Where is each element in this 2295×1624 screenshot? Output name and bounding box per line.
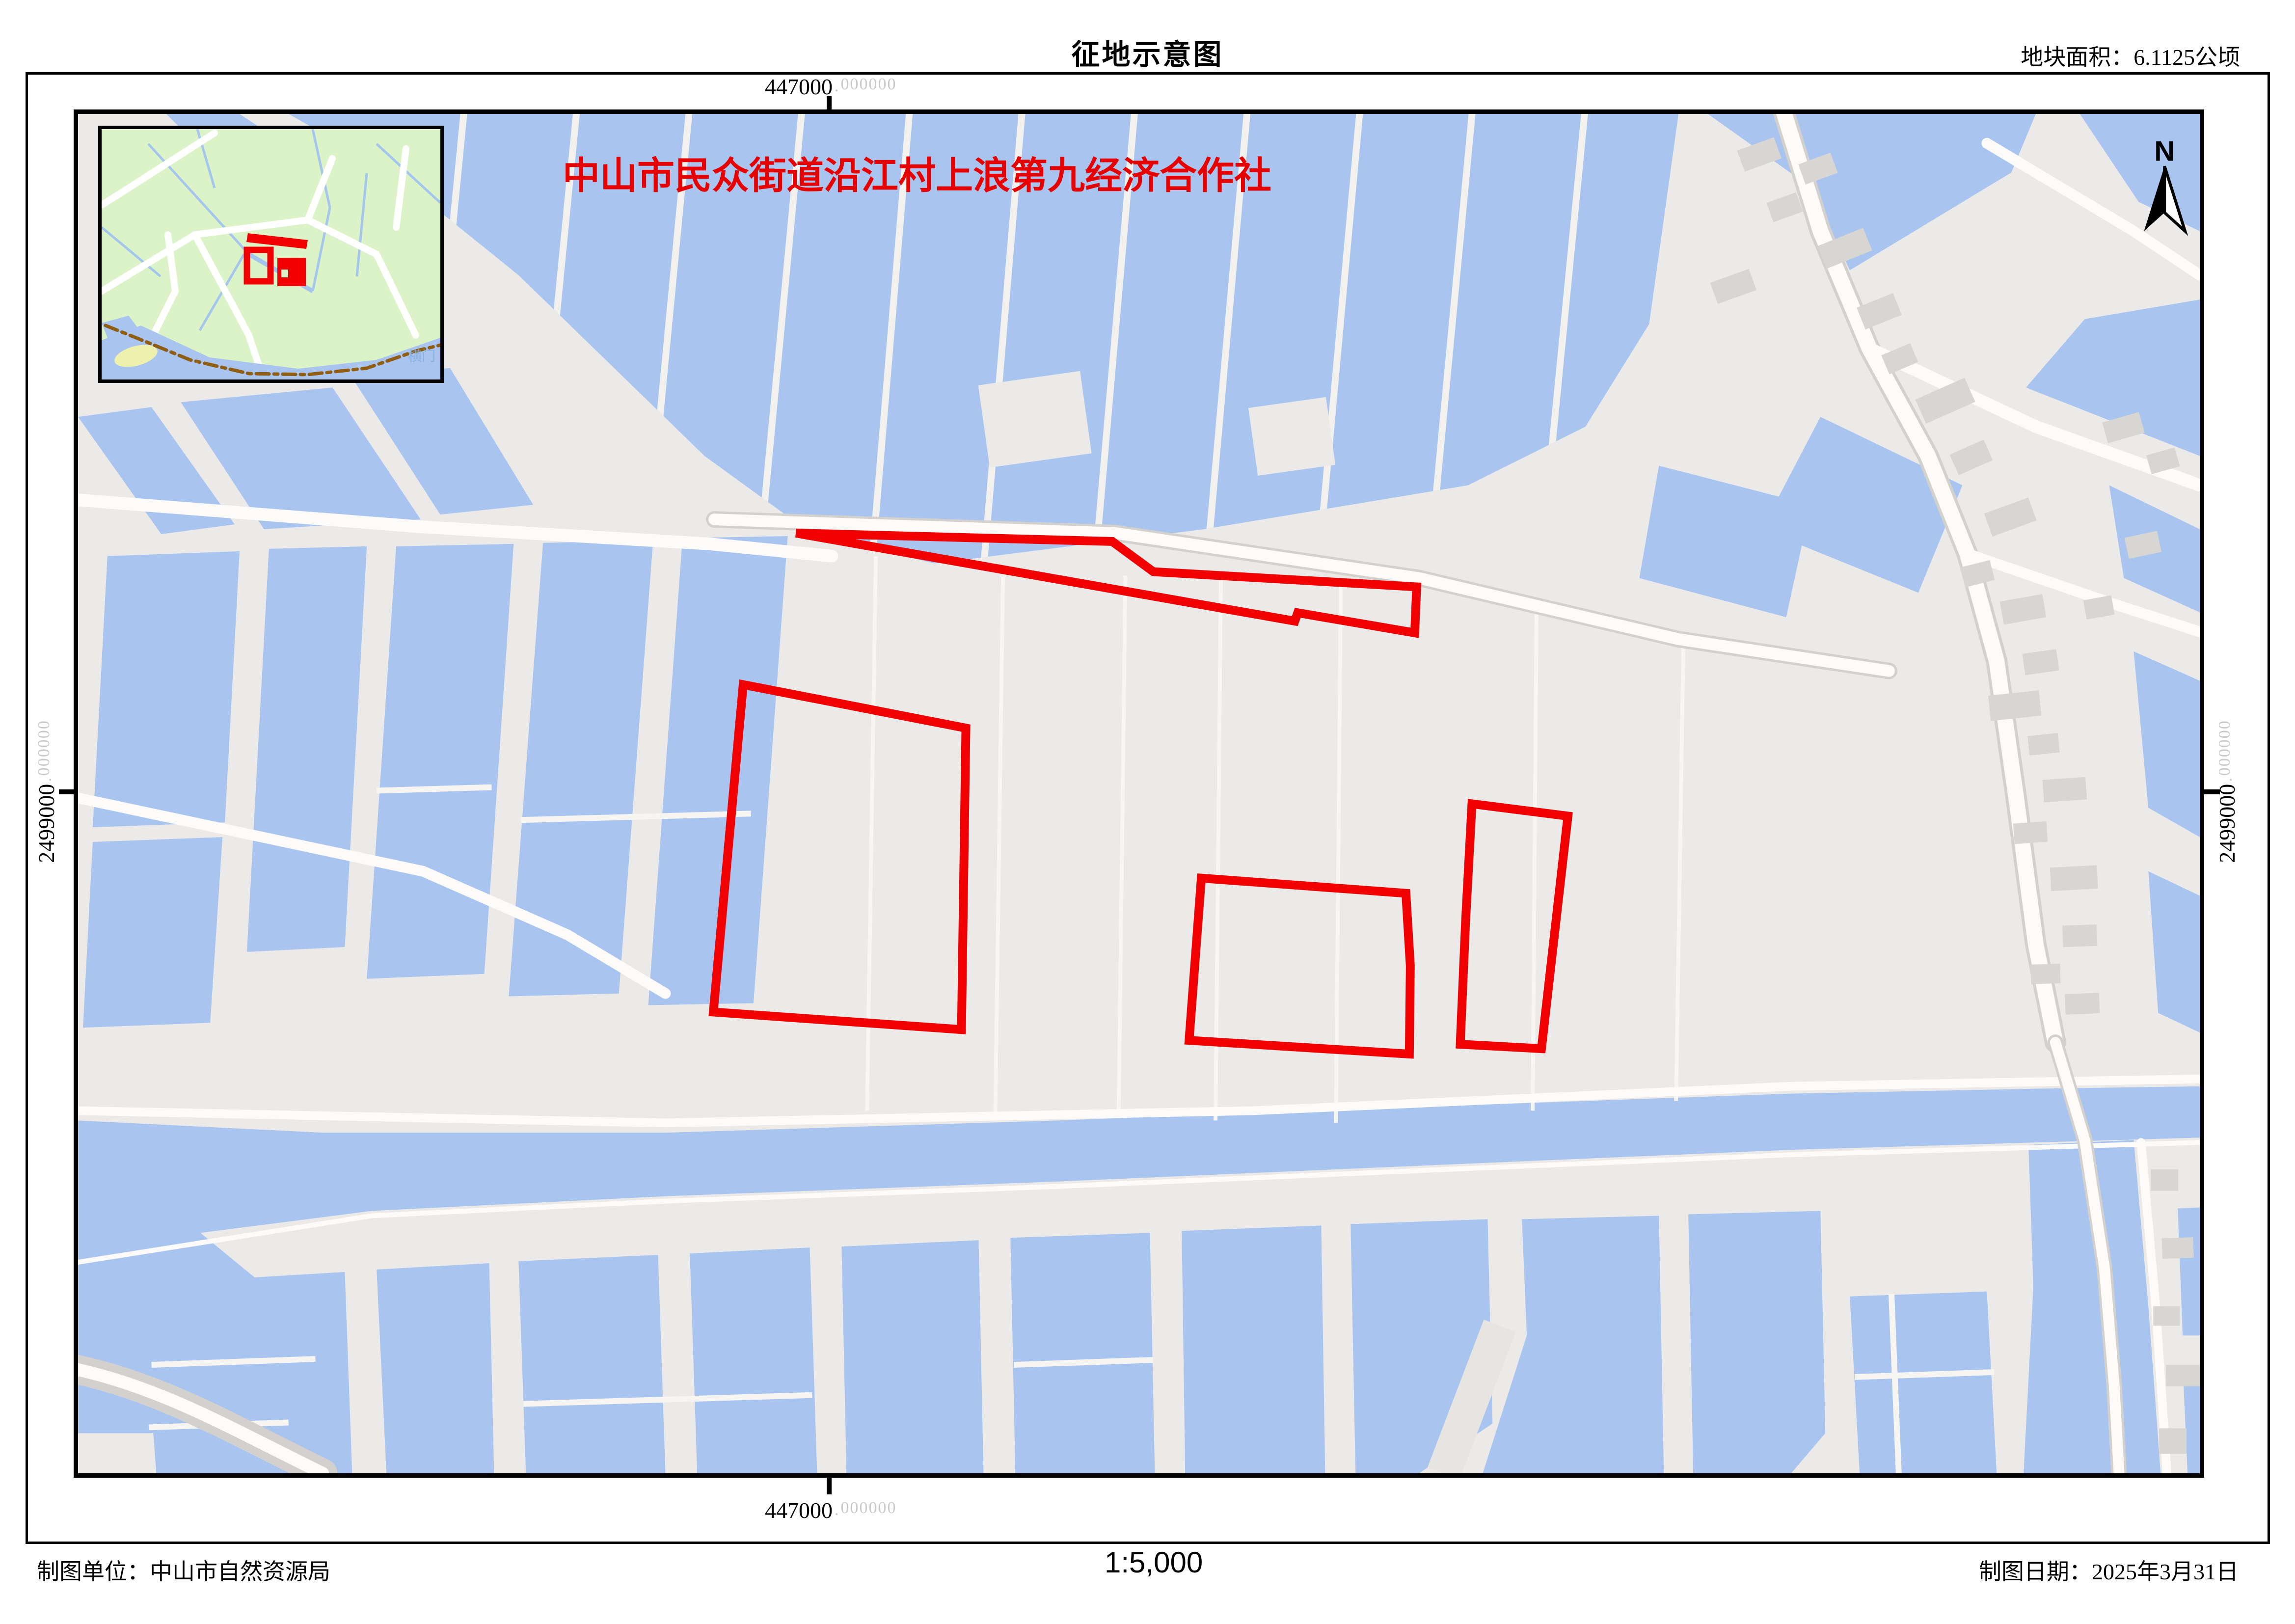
coord-label-left: 2499000 . 000000 [33,718,63,865]
coord-top-suffix: 000000 [841,75,897,94]
coord-label-right: 2499000 . 000000 [2214,718,2243,865]
map-scale: 1:5,000 [1105,1545,1203,1579]
north-label: N [2154,136,2175,167]
owner-label: 中山市民众街道沿江村上浪第九经济合作社 [563,145,1271,199]
coord-left-suffix: 000000 [35,720,54,776]
map-sheet: 征地示意图 地块面积：6.1125公顷 [0,0,2295,1624]
coord-right-main: 2499000 [2214,784,2240,863]
coord-label-top: 447000 . 000000 [765,74,897,100]
footer-mapping-unit: 制图单位：中山市自然资源局 [37,1554,330,1586]
coord-bottom-dot: . [835,1501,839,1519]
coord-left-main: 2499000 [33,784,59,863]
coord-right-suffix: 000000 [2215,720,2234,776]
footer-mapping-date: 制图日期：2025年3月31日 [1979,1554,2239,1586]
coord-right-dot: . [2217,778,2236,782]
coord-top-dot: . [835,77,839,96]
inset-water-label: 横门 [408,349,435,364]
coord-bottom-suffix: 000000 [841,1499,897,1517]
coord-label-bottom: 447000 . 000000 [765,1497,897,1523]
tick-bottom [827,1477,832,1494]
area-label: 地块面积：6.1125公顷 [2021,39,2240,72]
page-title: 征地示意图 [0,31,2295,73]
inset-map[interactable]: 横门 [98,126,444,383]
coord-bottom-main: 447000 [765,1497,833,1523]
inset-canvas: 横门 [102,129,440,379]
coord-top-main: 447000 [765,74,833,100]
coord-left-dot: . [37,778,55,782]
